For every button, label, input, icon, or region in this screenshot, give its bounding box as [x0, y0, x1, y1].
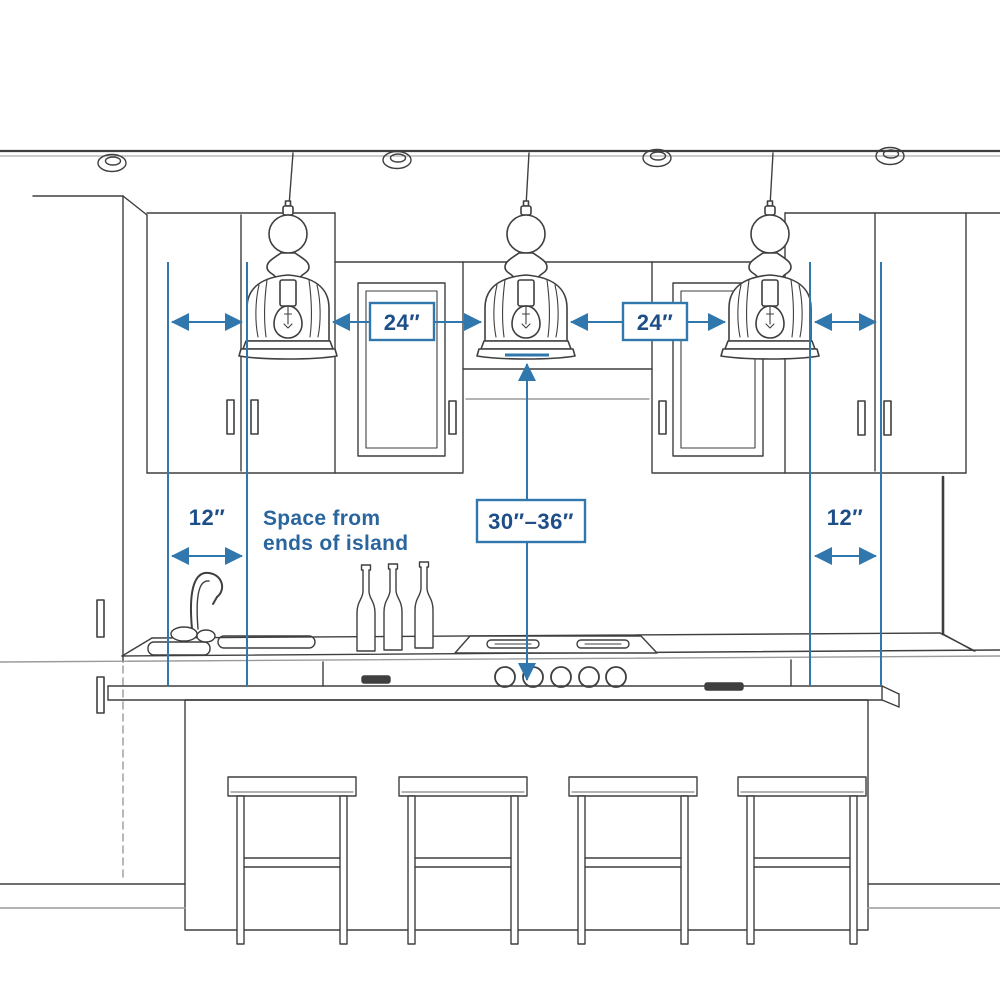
- pendant-gap-left-label: 24″: [384, 310, 421, 335]
- pendant-light-icon: [239, 201, 337, 359]
- faucet: [171, 573, 222, 642]
- cabinet-handle: [659, 401, 666, 434]
- cabinet-handle: [97, 677, 104, 713]
- island-end-right-label: 12″: [827, 505, 864, 530]
- diagram-canvas: 24″ 24″ 30″–36″ 12″ 12″ Space from ends …: [0, 0, 1000, 1000]
- note-line-1: Space from: [263, 507, 380, 530]
- pendant-cord: [289, 153, 293, 206]
- bar-stool: [738, 777, 866, 944]
- bar-stool: [569, 777, 697, 944]
- pendant-cord: [526, 153, 529, 206]
- pendant-cord: [770, 153, 773, 206]
- wine-bottles: [357, 562, 433, 651]
- bar-stool: [228, 777, 356, 944]
- pendant-light-icon: [721, 201, 819, 359]
- pendant-light-icon: [477, 201, 575, 359]
- pendant-spacing-diagram: 24″ 24″ 30″–36″ 12″ 12″ Space from ends …: [0, 0, 1000, 1000]
- ceiling-line: [0, 151, 1000, 156]
- range-hood: [463, 369, 652, 472]
- pendant-lights: [239, 153, 819, 359]
- island-body: [185, 700, 868, 930]
- note-line-2: ends of island: [263, 532, 408, 555]
- right-wall: [943, 477, 974, 651]
- cabinet-handle: [227, 400, 234, 434]
- bar-stool: [399, 777, 527, 944]
- cabinet-handle: [251, 400, 258, 434]
- cabinet-handle: [858, 401, 865, 435]
- left-wall: [33, 196, 147, 880]
- drawer-pull: [362, 676, 390, 683]
- cabinet-handle: [884, 401, 891, 435]
- cooktop: [455, 636, 657, 653]
- island-end-left-label: 12″: [189, 505, 226, 530]
- cabinet-handle: [449, 401, 456, 434]
- range-knobs: [495, 667, 626, 687]
- sink: [148, 636, 315, 655]
- pendant-gap-right-label: 24″: [637, 310, 674, 335]
- bar-stools: [228, 777, 866, 944]
- drawer-pull: [705, 683, 743, 690]
- cabinet-handle: [97, 600, 104, 637]
- hang-height-label: 30″–36″: [488, 509, 574, 534]
- kitchen-sketch: [0, 148, 1000, 945]
